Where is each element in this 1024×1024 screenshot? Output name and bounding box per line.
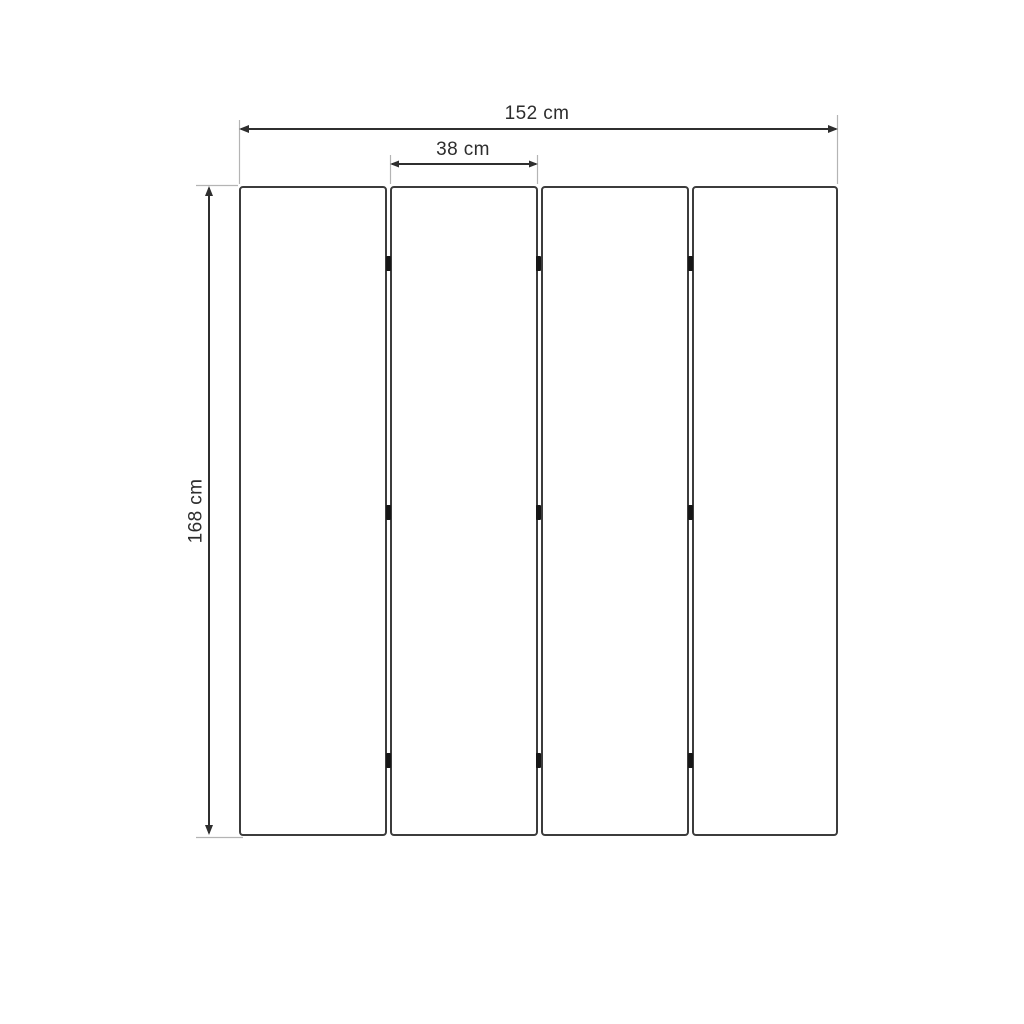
panel-4 [692, 186, 838, 836]
arrowhead-right-icon [828, 125, 838, 133]
arrowhead-down-icon [205, 825, 213, 835]
panel-1 [239, 186, 387, 836]
panel-2 [390, 186, 538, 836]
hinge-mark-icon [688, 256, 693, 271]
arrowhead-up-icon [205, 186, 213, 196]
arrowhead-left-icon [239, 125, 249, 133]
arrowhead-left-icon [390, 161, 399, 168]
arrowhead-right-icon [529, 161, 538, 168]
hinge-mark-icon [536, 753, 541, 768]
hinge-mark-icon [386, 505, 391, 520]
hinge-mark-icon [688, 505, 693, 520]
total-width-label: 152 cm [505, 104, 570, 123]
panel-3 [541, 186, 689, 836]
panel-width-label: 38 cm [436, 140, 490, 159]
hinge-mark-icon [536, 505, 541, 520]
hinge-mark-icon [386, 753, 391, 768]
hinge-mark-icon [688, 753, 693, 768]
panel-width-dimension [390, 161, 538, 168]
hinge-mark-icon [386, 256, 391, 271]
dimension-diagram: 152 cm 38 cm 168 cm [0, 0, 1024, 1024]
total-width-dimension [239, 125, 838, 133]
height-label: 168 cm [187, 479, 206, 544]
hinge-mark-icon [536, 256, 541, 271]
